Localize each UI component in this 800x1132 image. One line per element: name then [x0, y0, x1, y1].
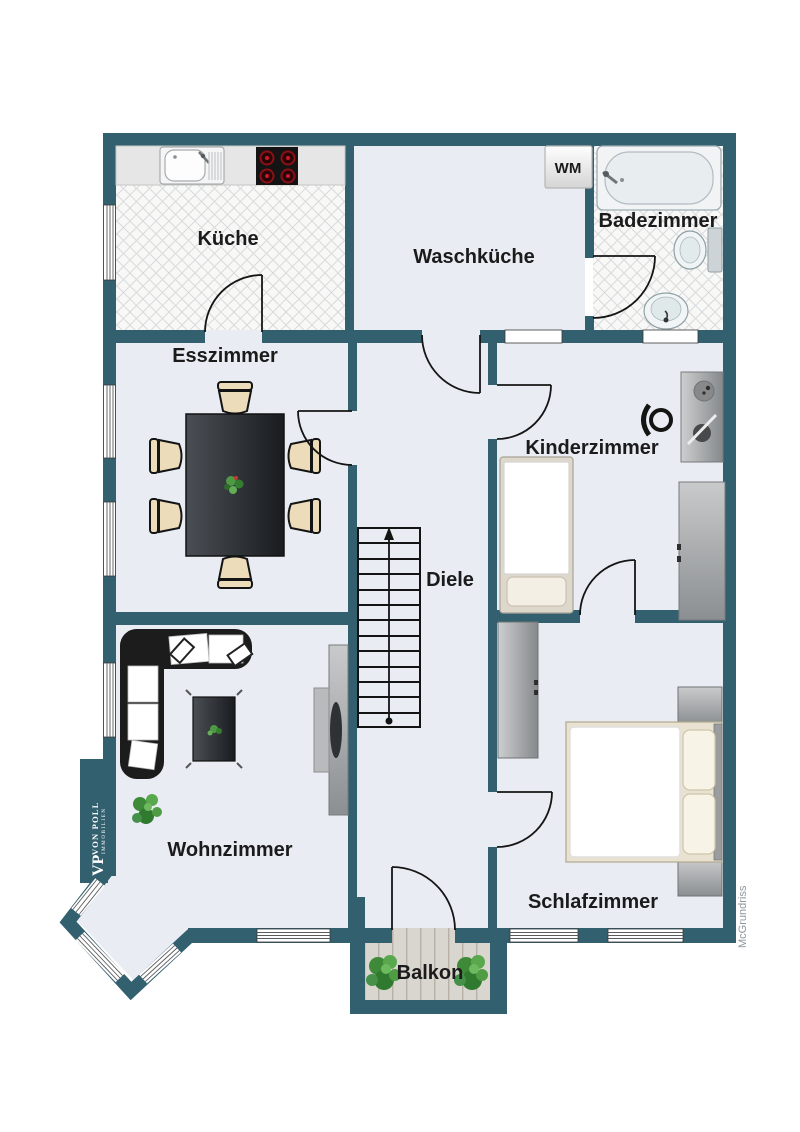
balkon-wall-bottom	[350, 1000, 507, 1014]
gap-kinder-schlaf	[580, 610, 635, 623]
dining-chair	[289, 439, 321, 473]
wall-ess-wohn	[116, 612, 348, 625]
coffee-table-icon	[186, 690, 242, 768]
nightstand-icon	[678, 687, 722, 724]
washing-machine-label: WM	[555, 160, 582, 177]
window-esszimmer-left-1	[104, 385, 116, 458]
nightstand-icon	[678, 859, 722, 896]
watermark: McGrundriss	[737, 885, 749, 948]
window-kueche-left	[104, 205, 116, 280]
kitchen-sink-icon	[160, 147, 224, 184]
dining-chair	[150, 499, 182, 533]
room-label-kueche: Küche	[197, 228, 258, 250]
gap-esszimmer	[348, 411, 357, 465]
room-label-esszimmer: Esszimmer	[172, 345, 278, 367]
room-label-kinderzimmer: Kinderzimmer	[525, 437, 659, 459]
window-wohnzimmer-left	[104, 663, 116, 737]
dining-chair	[289, 499, 321, 533]
wall-top	[103, 133, 736, 146]
logo-vp-monogram: VP	[90, 854, 107, 876]
dining-chair	[218, 382, 252, 414]
logo-von-poll-text: VON POLL	[90, 801, 100, 855]
room-label-badezimmer: Badezimmer	[599, 210, 718, 232]
stove-icon	[256, 147, 298, 185]
wall-bad-stub	[585, 316, 594, 332]
dining-chair	[218, 557, 252, 589]
floorplan-svg: Küche Waschküche Badezimmer Esszimmer Ki…	[0, 0, 800, 1132]
bathroom-sink-icon	[644, 293, 688, 329]
tv-icon	[330, 702, 342, 758]
window-esszimmer-left-2	[104, 502, 116, 576]
floorplan-page: Küche Waschküche Badezimmer Esszimmer Ki…	[0, 0, 800, 1132]
dining-chair	[150, 439, 182, 473]
gap-kinderzimmer	[488, 385, 497, 439]
window-schlafzimmer-bottom-1	[510, 929, 578, 942]
desk-icon	[681, 372, 723, 462]
gap-kueche	[205, 330, 262, 343]
wardrobe-kinderzimmer-icon	[677, 482, 725, 620]
wall-kueche-waschkueche	[345, 146, 354, 335]
toilet-icon	[674, 228, 722, 272]
watermark-text: McGrundriss	[737, 885, 749, 948]
balkon-wall-left	[350, 897, 365, 1014]
window-schlafzimmer-bottom-2	[608, 929, 683, 942]
single-bed-icon	[500, 457, 573, 613]
vp-von-poll-logo: VP VON POLL IMMOBILIEN	[90, 801, 107, 876]
opening-bad-kinder	[643, 330, 698, 343]
room-label-schlafzimmer: Schlafzimmer	[528, 891, 658, 913]
kitchen-furniture	[116, 146, 345, 185]
stairs-start-dot	[386, 718, 393, 725]
bathtub-icon	[597, 146, 721, 210]
gap-schlafzimmer	[488, 792, 497, 847]
gap-waschkueche	[422, 330, 480, 343]
room-label-diele: Diele	[426, 569, 474, 591]
room-label-balkon: Balkon	[397, 962, 464, 984]
wardrobe-schlafzimmer-icon	[498, 622, 538, 758]
room-label-wohnzimmer: Wohnzimmer	[167, 839, 292, 861]
gap-balkon-door	[392, 928, 455, 943]
logo-immobilien-text: IMMOBILIEN	[102, 807, 107, 854]
room-label-waschkueche: Waschküche	[413, 246, 535, 268]
opening-wasch-kinder	[505, 330, 562, 343]
kitchen-counter	[116, 146, 345, 185]
window-wohnzimmer-bottom	[257, 929, 330, 942]
